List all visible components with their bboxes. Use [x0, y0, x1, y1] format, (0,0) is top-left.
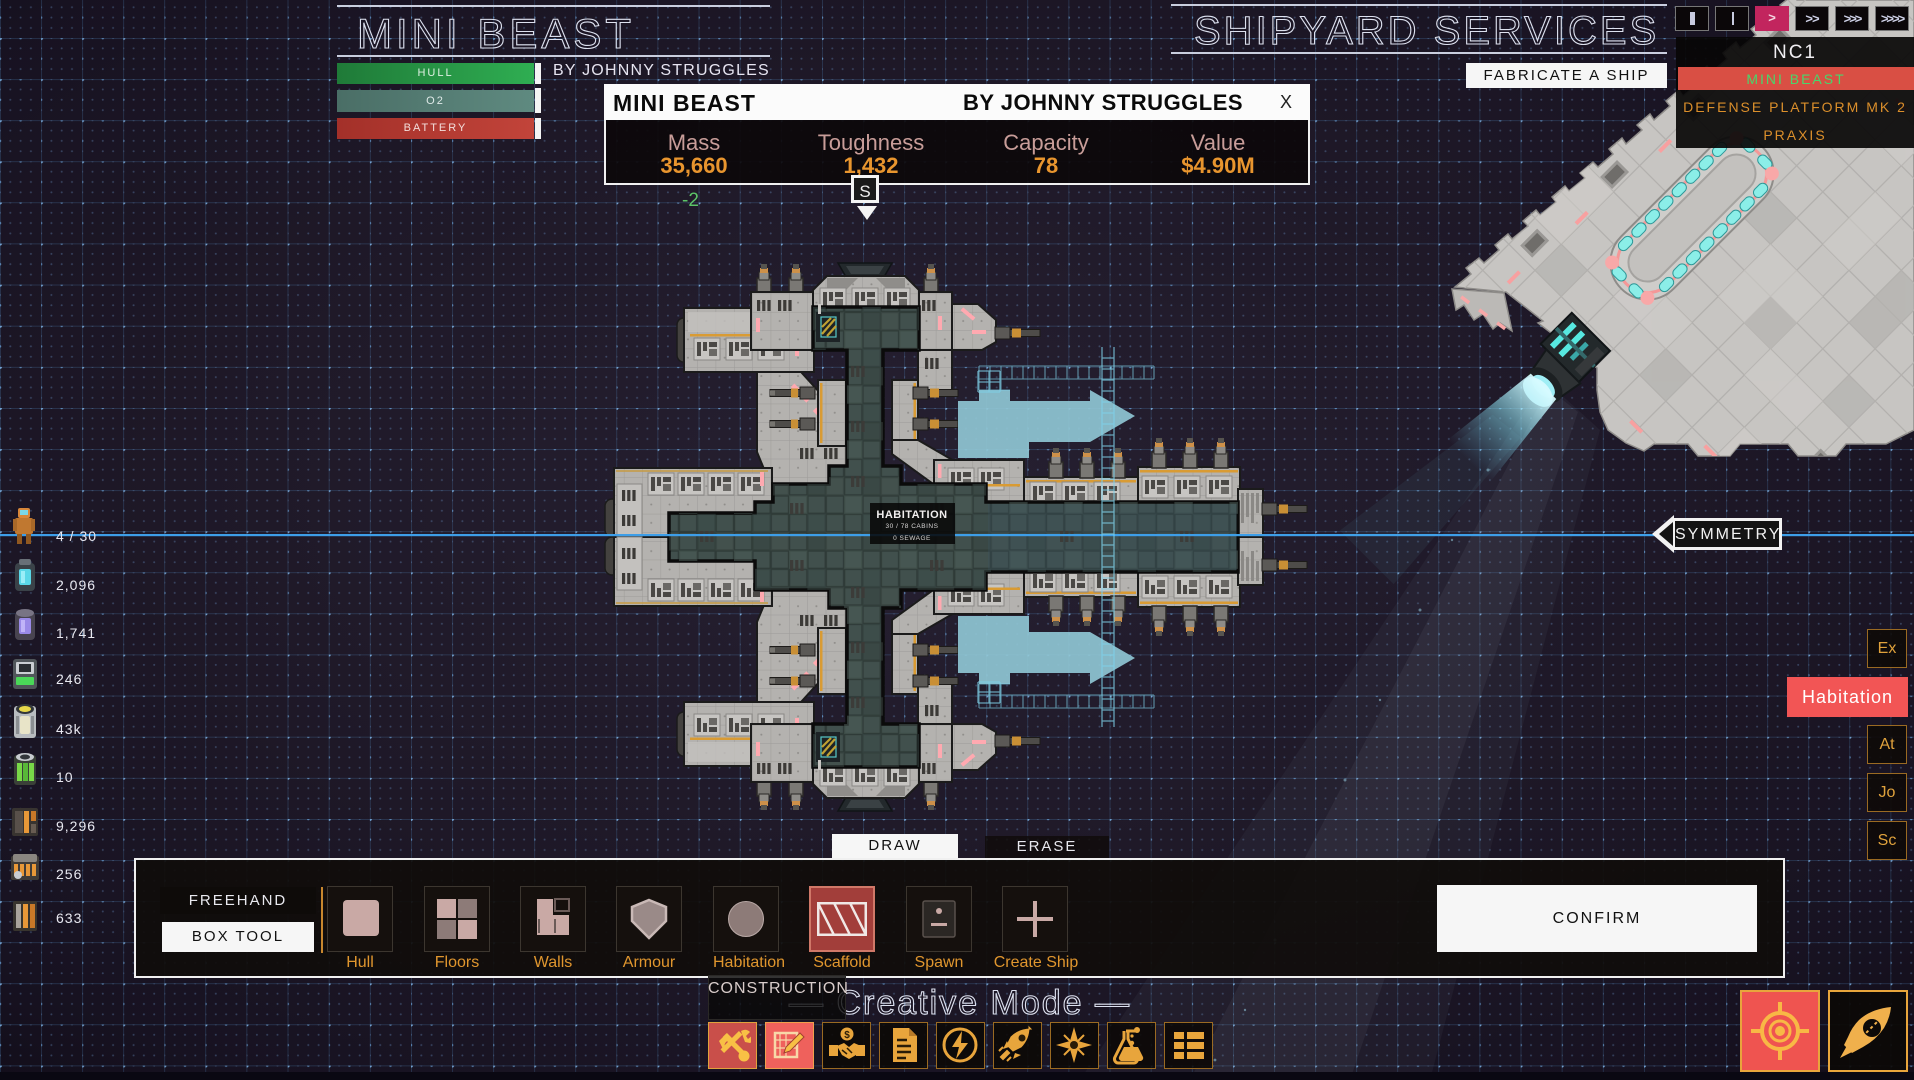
svg-text:$: $ — [844, 1030, 850, 1041]
